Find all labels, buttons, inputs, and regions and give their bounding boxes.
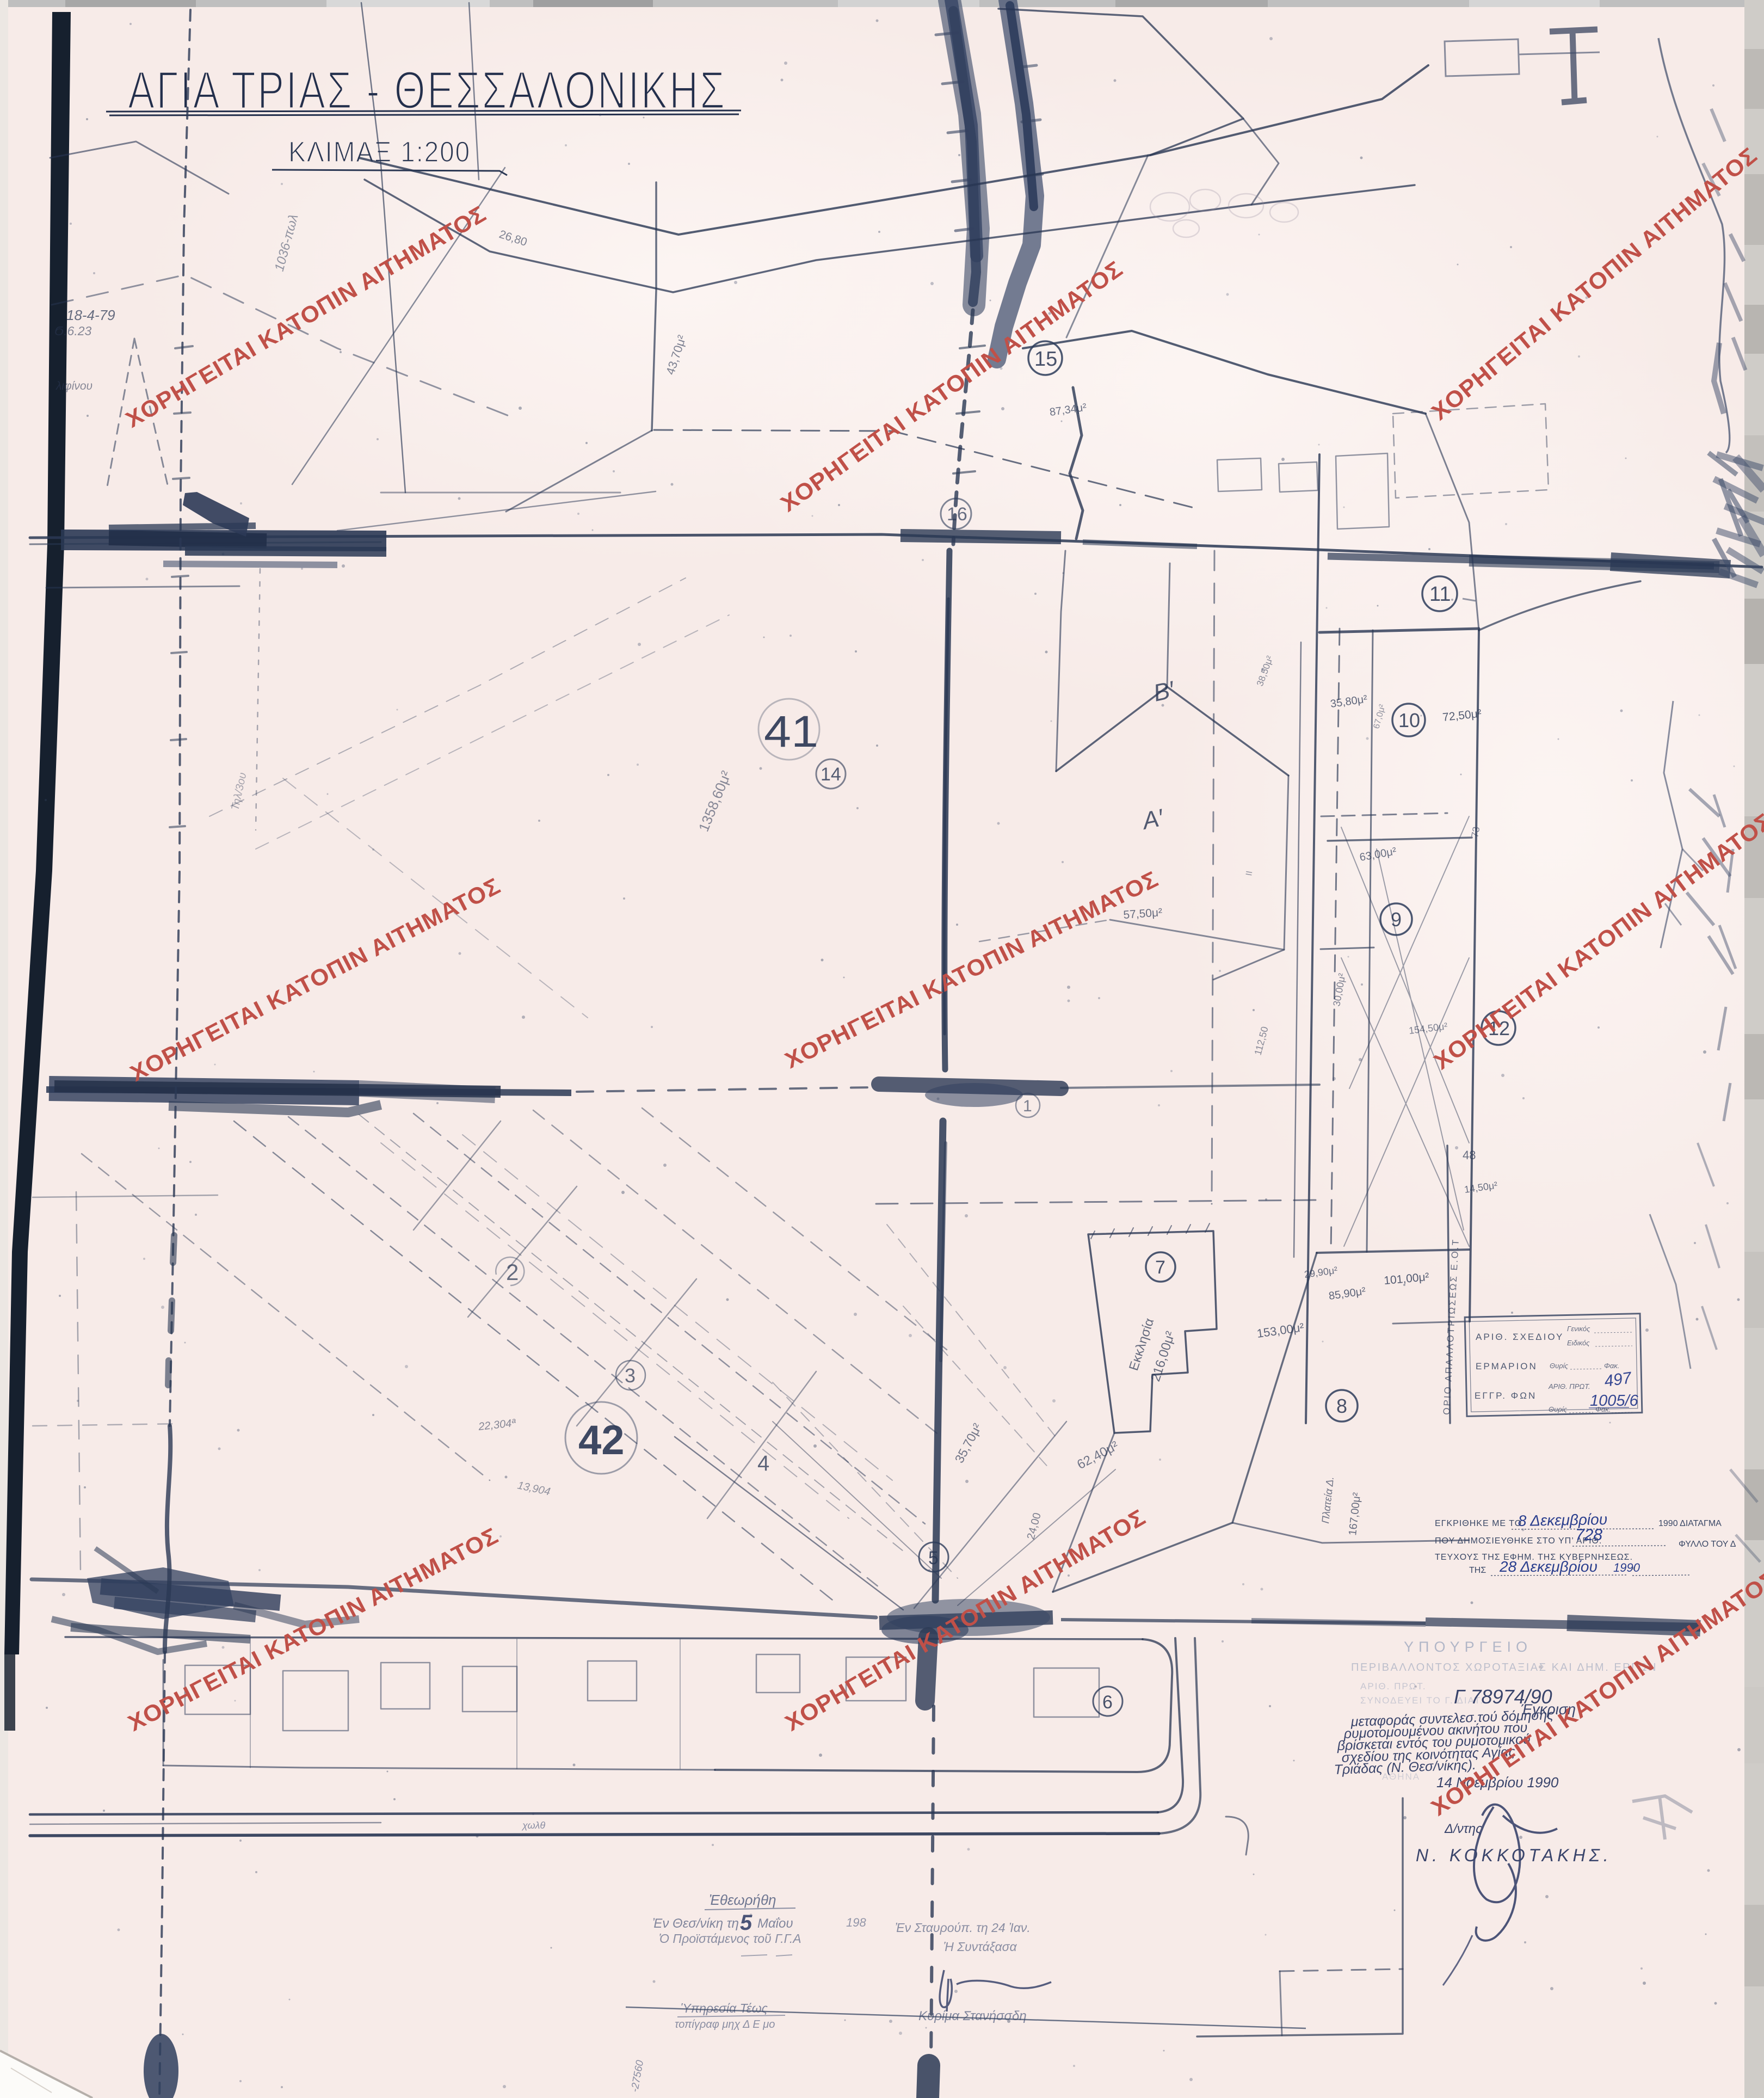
svg-text:4: 4 <box>757 1451 769 1475</box>
svg-text:8: 8 <box>1336 1395 1347 1417</box>
svg-text:ΥΠΟΥΡΓΕΙΟ: ΥΠΟΥΡΓΕΙΟ <box>1404 1639 1532 1655</box>
svg-text:728: 728 <box>1575 1526 1602 1544</box>
svg-text:ΤΗΣ: ΤΗΣ <box>1469 1566 1486 1575</box>
svg-text:Ἡ Συντάξασα: Ἡ Συντάξασα <box>943 1940 1017 1954</box>
svg-text:73: 73 <box>1469 826 1482 838</box>
svg-text:χωλθ: χωλθ <box>521 1820 545 1831</box>
svg-text:τοπίγραφ μηχ Δ Ε μο: τοπίγραφ μηχ Δ Ε μο <box>675 2019 775 2031</box>
svg-text:9: 9 <box>1391 908 1402 931</box>
svg-text:41: 41 <box>764 707 818 756</box>
svg-text:ΕΡΜΑΡΙΟΝ: ΕΡΜΑΡΙΟΝ <box>1476 1361 1538 1371</box>
svg-text:Ἐθεωρήθη: Ἐθεωρήθη <box>709 1892 776 1908</box>
svg-text:11: 11 <box>1429 583 1451 606</box>
svg-text:Ειδικός: Ειδικός <box>1567 1339 1590 1347</box>
svg-text:Δ/ντης: Δ/ντης <box>1444 1822 1482 1836</box>
svg-text:Φακ.: Φακ. <box>1604 1362 1619 1370</box>
svg-text:2: 2 <box>506 1259 519 1285</box>
svg-text:ΕΓΓΡ. ΦΩΝ: ΕΓΓΡ. ΦΩΝ <box>1475 1391 1537 1401</box>
svg-text:1990 ΔΙΑΤΑΓΜΑ: 1990 ΔΙΑΤΑΓΜΑ <box>1658 1519 1722 1528</box>
svg-text:3: 3 <box>625 1364 636 1387</box>
svg-text:10: 10 <box>1398 709 1420 731</box>
svg-text:1990: 1990 <box>1613 1561 1640 1574</box>
svg-text:Μαΐου: Μαΐου <box>757 1916 793 1931</box>
svg-text:Ἐν Θεσ/νίκη τη: Ἐν Θεσ/νίκη τη <box>652 1916 739 1931</box>
svg-text:Φακ.: Φακ. <box>1595 1405 1611 1413</box>
svg-text:ΦΥΛΛΟ ΤΟΥ Δ: ΦΥΛΛΟ ΤΟΥ Δ <box>1679 1540 1736 1549</box>
svg-text:18-4-79: 18-4-79 <box>66 307 115 323</box>
svg-text:48: 48 <box>1463 1148 1476 1162</box>
svg-text:Γενικός: Γενικός <box>1567 1325 1590 1333</box>
svg-text:198: 198 <box>846 1916 866 1929</box>
svg-text:Ὁ Προϊστάμενος τοῦ Γ.Γ.Α: Ὁ Προϊστάμενος τοῦ Γ.Γ.Α <box>659 1931 801 1946</box>
svg-text:Θυρίς: Θυρίς <box>1549 1405 1568 1413</box>
svg-text:Ὑπηρεσία Τέως: Ὑπηρεσία Τέως <box>681 2001 768 2015</box>
svg-text:42: 42 <box>578 1417 625 1463</box>
svg-text:Ϭ.6.23: Ϭ.6.23 <box>54 324 92 338</box>
svg-text:ΑΡΙΘ. ΠΡΩΤ.: ΑΡΙΘ. ΠΡΩΤ. <box>1548 1382 1590 1391</box>
svg-text:1: 1 <box>1023 1097 1032 1115</box>
svg-text:16: 16 <box>947 504 967 525</box>
svg-text:15: 15 <box>1034 348 1057 371</box>
svg-text:28 Δεκεμβρίου: 28 Δεκεμβρίου <box>1499 1558 1598 1575</box>
svg-text:Θυρίς: Θυρίς <box>1550 1362 1569 1370</box>
svg-text:ΕΓΚΡΙΘΗΚΕ ΜΕ ΤΟ: ΕΓΚΡΙΘΗΚΕ ΜΕ ΤΟ <box>1435 1519 1522 1528</box>
svg-text:λιφίνου: λιφίνου <box>55 380 92 392</box>
svg-text:14: 14 <box>821 764 841 785</box>
svg-text:7: 7 <box>1155 1257 1165 1278</box>
svg-text:ΑΡΙΘ. ΣΧΕΔΙΟΥ: ΑΡΙΘ. ΣΧΕΔΙΟΥ <box>1476 1332 1564 1342</box>
svg-text:6: 6 <box>1102 1692 1113 1713</box>
svg-text:ΠΕΡΙΒΑΛΛΟΝΤΟΣ ΧΩΡΟΤΑΞΙΑΣ ΚΑΙ Δ: ΠΕΡΙΒΑΛΛΟΝΤΟΣ ΧΩΡΟΤΑΞΙΑΣ ΚΑΙ ΔΗΜ. ΕΡΓΩΝ <box>1351 1662 1657 1674</box>
svg-text:Ἐν Σταυρούπ. τη 24 Ἰαν.: Ἐν Σταυρούπ. τη 24 Ἰαν. <box>895 1921 1031 1935</box>
svg-text:Ν. ΚΟΚΚΟΤΑΚΗΣ.: Ν. ΚΟΚΚΟΤΑΚΗΣ. <box>1416 1845 1612 1865</box>
